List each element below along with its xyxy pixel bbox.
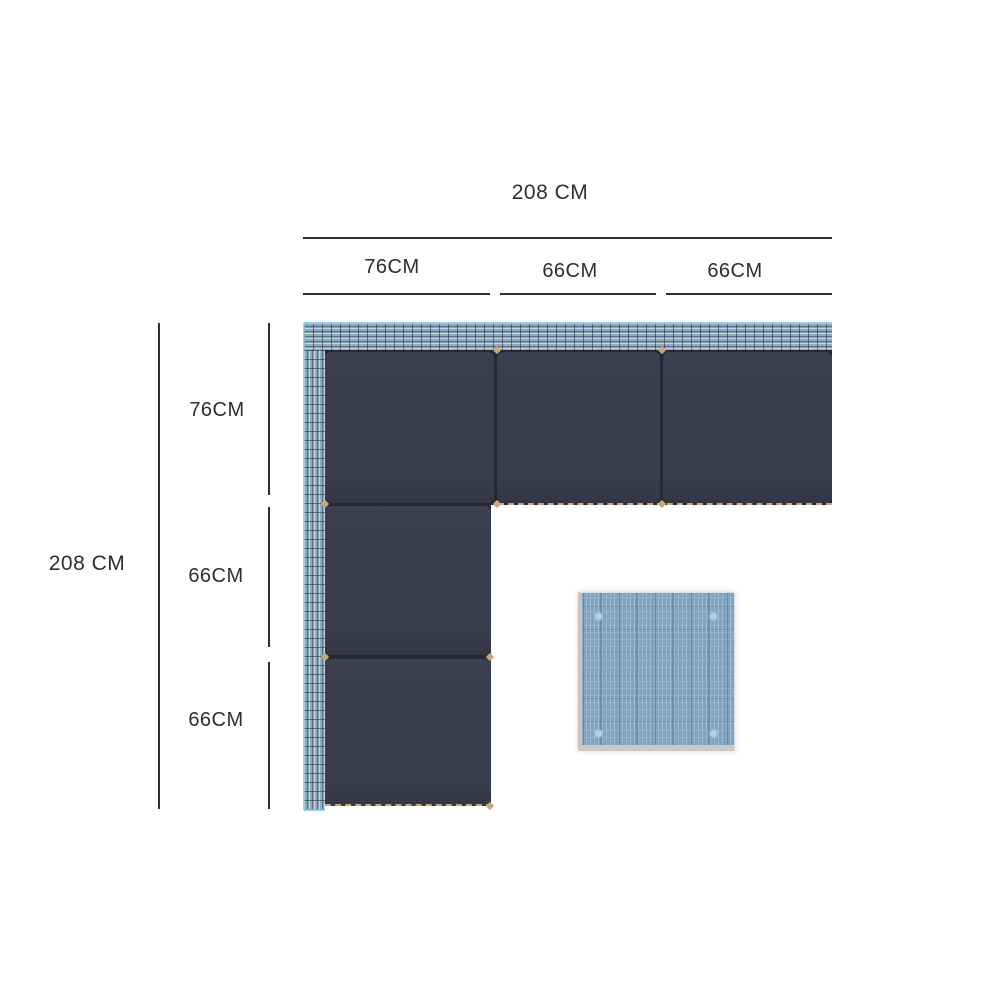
top-segment-label-2: 66CM xyxy=(520,260,620,282)
table-corner-fitting xyxy=(709,612,718,621)
sofa-frame-edge-highlight-top xyxy=(304,322,832,324)
top-segment-line-2 xyxy=(500,293,656,295)
left-segment-line-3 xyxy=(268,662,270,809)
top-segment-label-3: 66CM xyxy=(685,260,785,282)
top-segment-line-3 xyxy=(666,293,832,295)
sofa-dimension-diagram: 208 CM 76CM 66CM 66CM 208 CM 76CM 66CM 6… xyxy=(0,0,1000,1000)
sofa-cushion-left-middle xyxy=(325,506,491,655)
sofa-frame-edge-highlight-left xyxy=(303,323,305,810)
top-segment-label-1: 76CM xyxy=(342,256,442,278)
left-segment-line-1 xyxy=(268,323,270,495)
sofa-cushion-corner xyxy=(325,352,494,503)
corner-sofa xyxy=(304,323,832,810)
sofa-back-frame-left xyxy=(304,350,325,810)
sofa-cushion-top-middle xyxy=(497,352,660,503)
left-segment-line-2 xyxy=(268,507,270,647)
table-corner-fitting xyxy=(594,612,603,621)
cushion-piping-bottom xyxy=(325,804,492,806)
seam-marker xyxy=(486,802,494,810)
sofa-back-frame-top xyxy=(304,323,832,350)
sofa-cushion-left-bottom xyxy=(325,659,491,806)
sofa-frame-edge-highlight-bottom xyxy=(304,809,325,811)
left-total-dimension-line xyxy=(158,323,160,809)
top-total-dimension-line xyxy=(303,237,832,239)
left-segment-label-2: 66CM xyxy=(166,565,266,587)
table-corner-fitting xyxy=(709,729,718,738)
table-corner-fitting xyxy=(594,729,603,738)
left-total-dimension-label: 208 CM xyxy=(16,552,158,575)
top-total-dimension-label: 208 CM xyxy=(460,181,640,204)
sofa-cushion-top-right xyxy=(663,352,832,503)
top-segment-line-1 xyxy=(303,293,490,295)
left-segment-label-3: 66CM xyxy=(166,709,266,731)
side-table xyxy=(578,592,735,751)
left-segment-label-1: 76CM xyxy=(167,399,267,421)
